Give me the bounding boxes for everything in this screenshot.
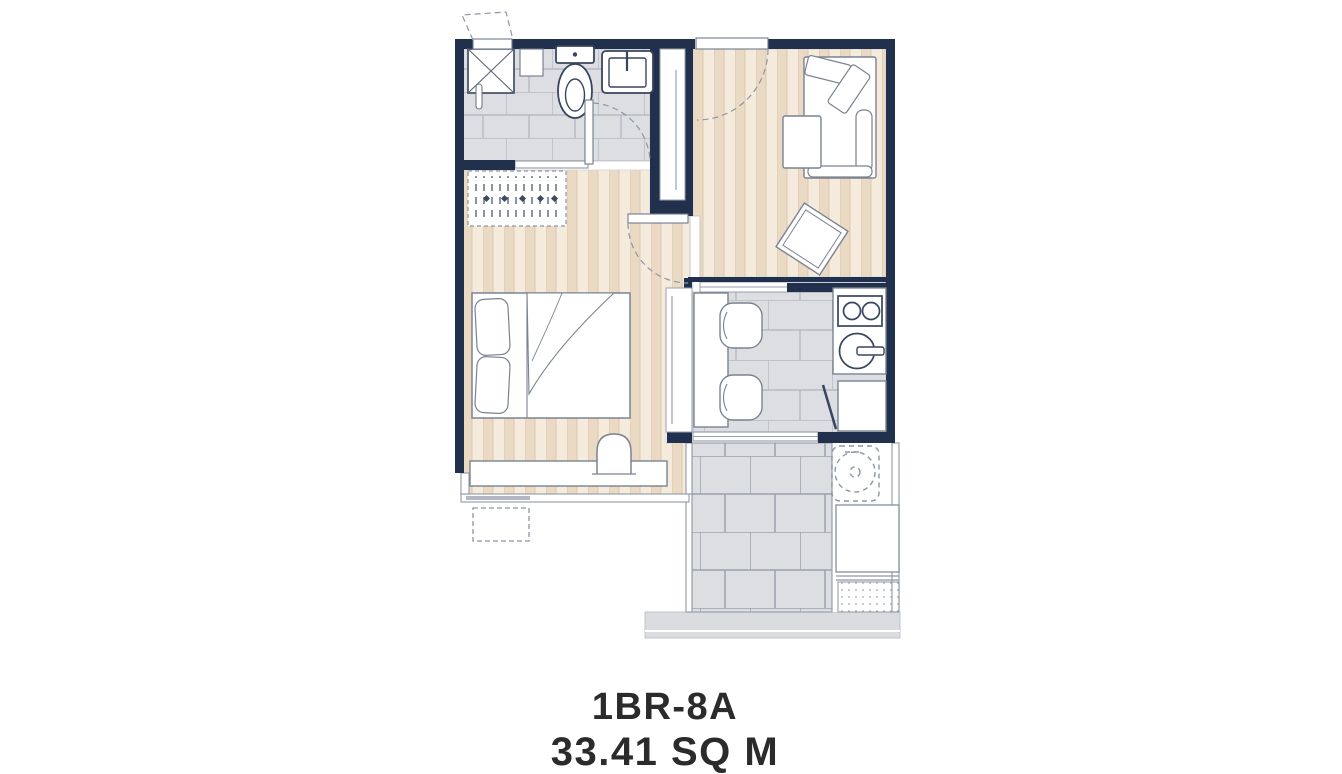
- coffee-table: [783, 116, 821, 168]
- passage-jamb: [690, 216, 700, 278]
- bed: [472, 293, 630, 418]
- bathroom-glass-partition: [515, 161, 588, 168]
- planter-ledge: [836, 505, 899, 612]
- dining-chair: [720, 375, 762, 420]
- sofa-back-cushion: [856, 110, 872, 172]
- cooktop: [838, 296, 882, 326]
- bedroom-closet: [468, 171, 566, 226]
- window-return: [461, 473, 469, 494]
- hall-wardrobe: [660, 49, 685, 200]
- balcony-parapet: [645, 612, 900, 638]
- divider-cabinet: [666, 288, 692, 432]
- balcony-tiles: [692, 443, 832, 612]
- shower: [462, 12, 514, 93]
- shower-door-swing: [462, 12, 513, 40]
- desk: [470, 461, 667, 486]
- pillow: [475, 356, 511, 414]
- floor-plan: [0, 0, 1342, 754]
- partition-stub: [520, 49, 543, 76]
- bedroom-east-partition: [686, 443, 692, 494]
- towel-bar: [476, 84, 482, 109]
- pillow: [475, 298, 511, 356]
- balcony-left-wall: [686, 494, 692, 612]
- wash-basin: [602, 51, 653, 93]
- dining-chair: [720, 303, 762, 348]
- condenser-unit: [473, 508, 529, 541]
